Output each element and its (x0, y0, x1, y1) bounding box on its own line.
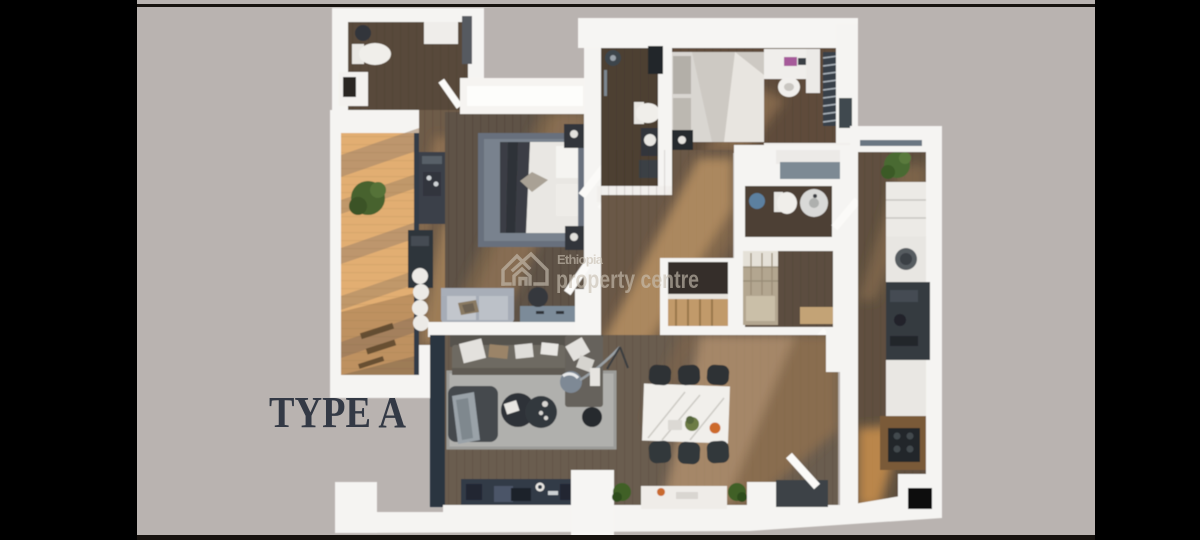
svg-text:property centre: property centre (556, 266, 699, 294)
svg-text:TYPE A: TYPE A (269, 388, 406, 437)
svg-text:Ethiopia: Ethiopia (557, 252, 604, 267)
